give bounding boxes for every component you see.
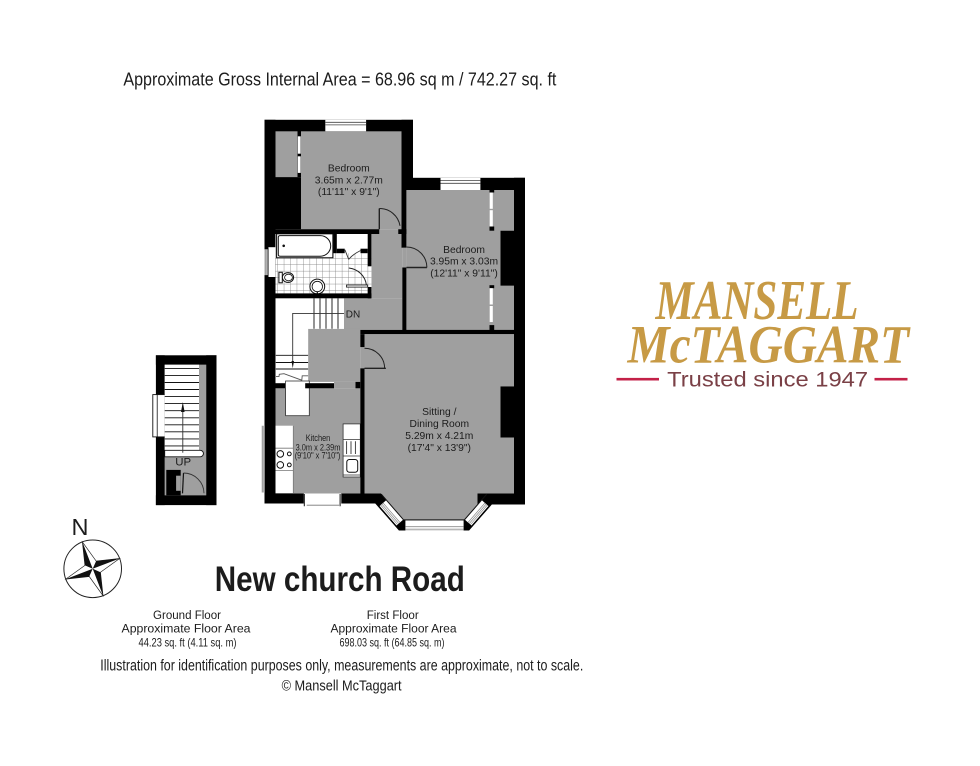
svg-text:Approximate Floor Area: Approximate Floor Area [331, 622, 457, 636]
svg-text:(17'4" x 13'9"): (17'4" x 13'9") [408, 443, 471, 454]
svg-text:© Mansell McTaggart: © Mansell McTaggart [282, 679, 402, 695]
svg-text:Ground Floor: Ground Floor [153, 608, 221, 622]
svg-text:DN: DN [346, 309, 360, 320]
svg-text:Approximate Floor Area: Approximate Floor Area [122, 622, 251, 636]
svg-text:Approximate Gross Internal Are: Approximate Gross Internal Area = 68.96 … [123, 68, 556, 89]
svg-text:N: N [72, 514, 89, 540]
svg-text:3.65m x 2.77m: 3.65m x 2.77m [315, 175, 383, 186]
svg-text:Sitting /: Sitting / [422, 407, 456, 418]
svg-text:New church Road: New church Road [215, 560, 465, 599]
svg-text:McTAGGART: McTAGGART [627, 315, 911, 375]
svg-text:698.03 sq. ft (64.85 sq. m): 698.03 sq. ft (64.85 sq. m) [340, 635, 445, 649]
svg-text:5.29m x 4.21m: 5.29m x 4.21m [405, 431, 473, 442]
svg-text:Bedroom: Bedroom [328, 164, 370, 175]
svg-text:First Floor: First Floor [367, 608, 419, 622]
svg-text:3.95m x 3.03m: 3.95m x 3.03m [430, 257, 498, 268]
svg-text:(12'11" x 9'11"): (12'11" x 9'11") [430, 268, 498, 279]
svg-text:44.23 sq. ft (4.11 sq. m): 44.23 sq. ft (4.11 sq. m) [139, 635, 237, 649]
svg-text:Bedroom: Bedroom [443, 245, 485, 256]
svg-text:(9'10" x 7'10"): (9'10" x 7'10") [295, 451, 341, 461]
svg-text:(11'11" x 9'1"): (11'11" x 9'1") [318, 187, 380, 198]
svg-text:Trusted since 1947: Trusted since 1947 [667, 369, 868, 392]
svg-text:Dining Room: Dining Room [410, 419, 470, 430]
svg-text:Illustration for identificatio: Illustration for identification purposes… [100, 658, 583, 675]
svg-text:UP: UP [175, 457, 191, 469]
